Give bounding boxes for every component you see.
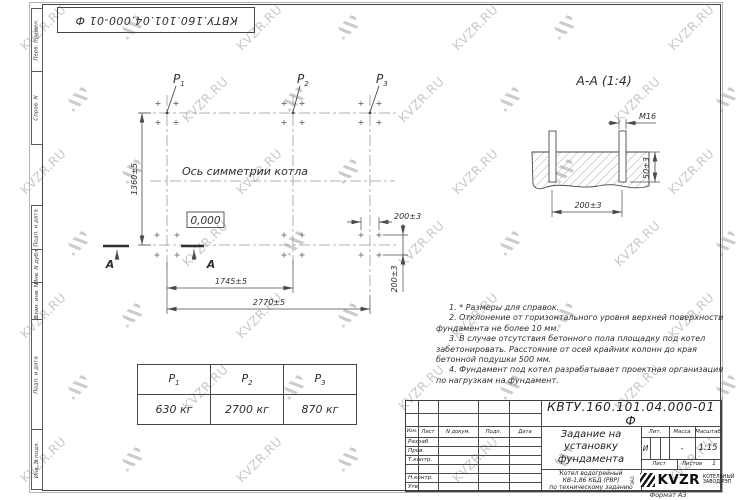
row-label-empty xyxy=(406,464,438,473)
company-name-line: ЗАВОД РЭП xyxy=(703,480,734,485)
load-point-p2 xyxy=(292,112,295,115)
load-table-header-p3: P3 xyxy=(284,365,357,395)
sheets-label: Листов xyxy=(677,459,707,469)
section-title: А-А (1:4) xyxy=(575,73,631,88)
plan-center-lines xyxy=(139,95,397,292)
load-value-p2: 2700 кг xyxy=(211,395,284,425)
svg-text:2770±5: 2770±5 xyxy=(253,298,285,307)
dim-outer-width: 2770±5 xyxy=(167,295,370,314)
load-label-p1: P1 xyxy=(173,72,185,88)
load-table-header-row: P1 P2 P3 xyxy=(138,365,357,395)
load-point-p3 xyxy=(369,112,372,115)
note-3: 3. В случае отсутствия бетонного пола пл… xyxy=(436,334,729,365)
doc-subtitle-line: Котел водогрейный xyxy=(560,470,623,477)
svg-text:1360±5: 1360±5 xyxy=(130,163,139,195)
scale-value: 1:15 xyxy=(695,437,721,459)
col-header-izm: Изм. xyxy=(406,426,418,437)
note-4: 4. Фундамент под котел разрабатывает про… xyxy=(436,365,729,386)
doc-subtitle-line: КВ-1,86 КБД (РВР) xyxy=(563,477,620,484)
doc-number: КВТУ.160.101.04.000-01 Ф xyxy=(541,401,721,426)
drawing-sheet: KVZR.RUKVZR.RUKVZR.RUKVZR.RUKVZR.RUKVZR.… xyxy=(0,0,750,500)
row-label-razrab: Разраб. xyxy=(406,437,438,446)
load-label-p2: P2 xyxy=(297,72,309,88)
lit-header: Лит. xyxy=(641,426,669,437)
format-label: Формат А3 xyxy=(628,491,708,499)
anchor-stud-right xyxy=(619,131,626,182)
lit-value: И xyxy=(641,437,650,459)
dim-thread: М16 xyxy=(608,112,656,129)
load-table-header-p2: P2 xyxy=(211,365,284,395)
scale-header: Масштаб xyxy=(695,426,721,437)
svg-text:А: А xyxy=(105,258,115,271)
logo-text: KVZR xyxy=(658,472,700,488)
symmetry-axis-label: Ось симметрии котла xyxy=(182,165,308,178)
load-label-p3: P3 xyxy=(376,72,388,88)
svg-text:А: А xyxy=(206,258,216,271)
load-point-leaders xyxy=(167,86,379,112)
mass-value: - xyxy=(669,437,695,459)
anchor-stud-left xyxy=(549,131,556,182)
sheet-label: Лист xyxy=(641,459,677,469)
doc-title-line: установку xyxy=(564,441,618,454)
col-header-ndokum: N докум. xyxy=(438,426,478,437)
note-2: 2. Отклонение от горизонтального уровня … xyxy=(436,313,729,334)
col-header-data: Дата xyxy=(509,426,541,437)
load-value-p1: 630 кг xyxy=(138,395,211,425)
row-label-tkontr: Т.контр. xyxy=(406,455,438,464)
company-name: КОТЕЛЬНЫЙ ЗАВОД РЭП xyxy=(703,475,734,486)
section-view: А-А (1:4) М16 50±3 xyxy=(532,73,660,217)
note-1: 1. * Размеры для справок. xyxy=(436,303,729,313)
dim-bolt-spacing-h: 200±3 xyxy=(347,212,421,230)
level-mark: 0,000 xyxy=(190,215,220,227)
doc-title-line: фундамента xyxy=(558,454,624,467)
title-block: КВТУ.160.101.04.000-01 Ф Изм. Лист N док… xyxy=(405,400,722,492)
sheets-value: 1 xyxy=(707,459,721,469)
doc-title-line: Задание на xyxy=(561,429,622,442)
kvzr-logo-icon xyxy=(640,473,655,487)
plan-view: P1 P2 P3 Ось симметрии котла 0,000 1360±… xyxy=(103,72,421,314)
doc-subtitle-line: по техническому заданию xyxy=(549,484,632,491)
dim-height: 1360±5 xyxy=(130,113,151,245)
doc-subtitle: Котел водогрейный КВ-1,86 КБД (РВР) по т… xyxy=(541,469,641,491)
col-header-podp: Подп. xyxy=(478,426,509,437)
row-label-utv: Утв. xyxy=(406,482,438,491)
dim-stud-spacing: 200±3 xyxy=(552,190,622,217)
anchor-bolt-markers xyxy=(155,101,382,258)
row-label-prov: Пров. xyxy=(406,446,438,455)
technical-notes: 1. * Размеры для справок. 2. Отклонение … xyxy=(436,303,729,386)
load-point-p1 xyxy=(166,112,169,115)
load-table-value-row: 630 кг 2700 кг 870 кг xyxy=(138,395,357,425)
doc-title: Задание на установку фундамента xyxy=(541,427,641,468)
svg-text:200±3: 200±3 xyxy=(394,212,421,221)
svg-text:50±3: 50±3 xyxy=(642,157,651,179)
section-cut-marks: А А xyxy=(103,246,215,271)
row-label-nkontr: Н.контр. xyxy=(406,473,438,482)
load-table-header-p1: P1 xyxy=(138,365,211,395)
load-table: P1 P2 P3 630 кг 2700 кг 870 кг xyxy=(137,364,357,425)
load-value-p3: 870 кг xyxy=(284,395,357,425)
logo-prefix: ЗАО xyxy=(630,476,635,485)
col-header-list: Лист xyxy=(418,426,438,437)
svg-text:200±3: 200±3 xyxy=(390,265,399,292)
dim-bolt-spacing-v: 200±3 xyxy=(383,224,408,293)
svg-text:1745±5: 1745±5 xyxy=(215,277,247,286)
company-logo: ЗАО KVZR КОТЕЛЬНЫЙ ЗАВОД РЭП xyxy=(641,469,721,491)
mass-header: Масса xyxy=(669,426,695,437)
svg-text:М16: М16 xyxy=(639,112,656,121)
svg-text:200±3: 200±3 xyxy=(574,201,601,210)
